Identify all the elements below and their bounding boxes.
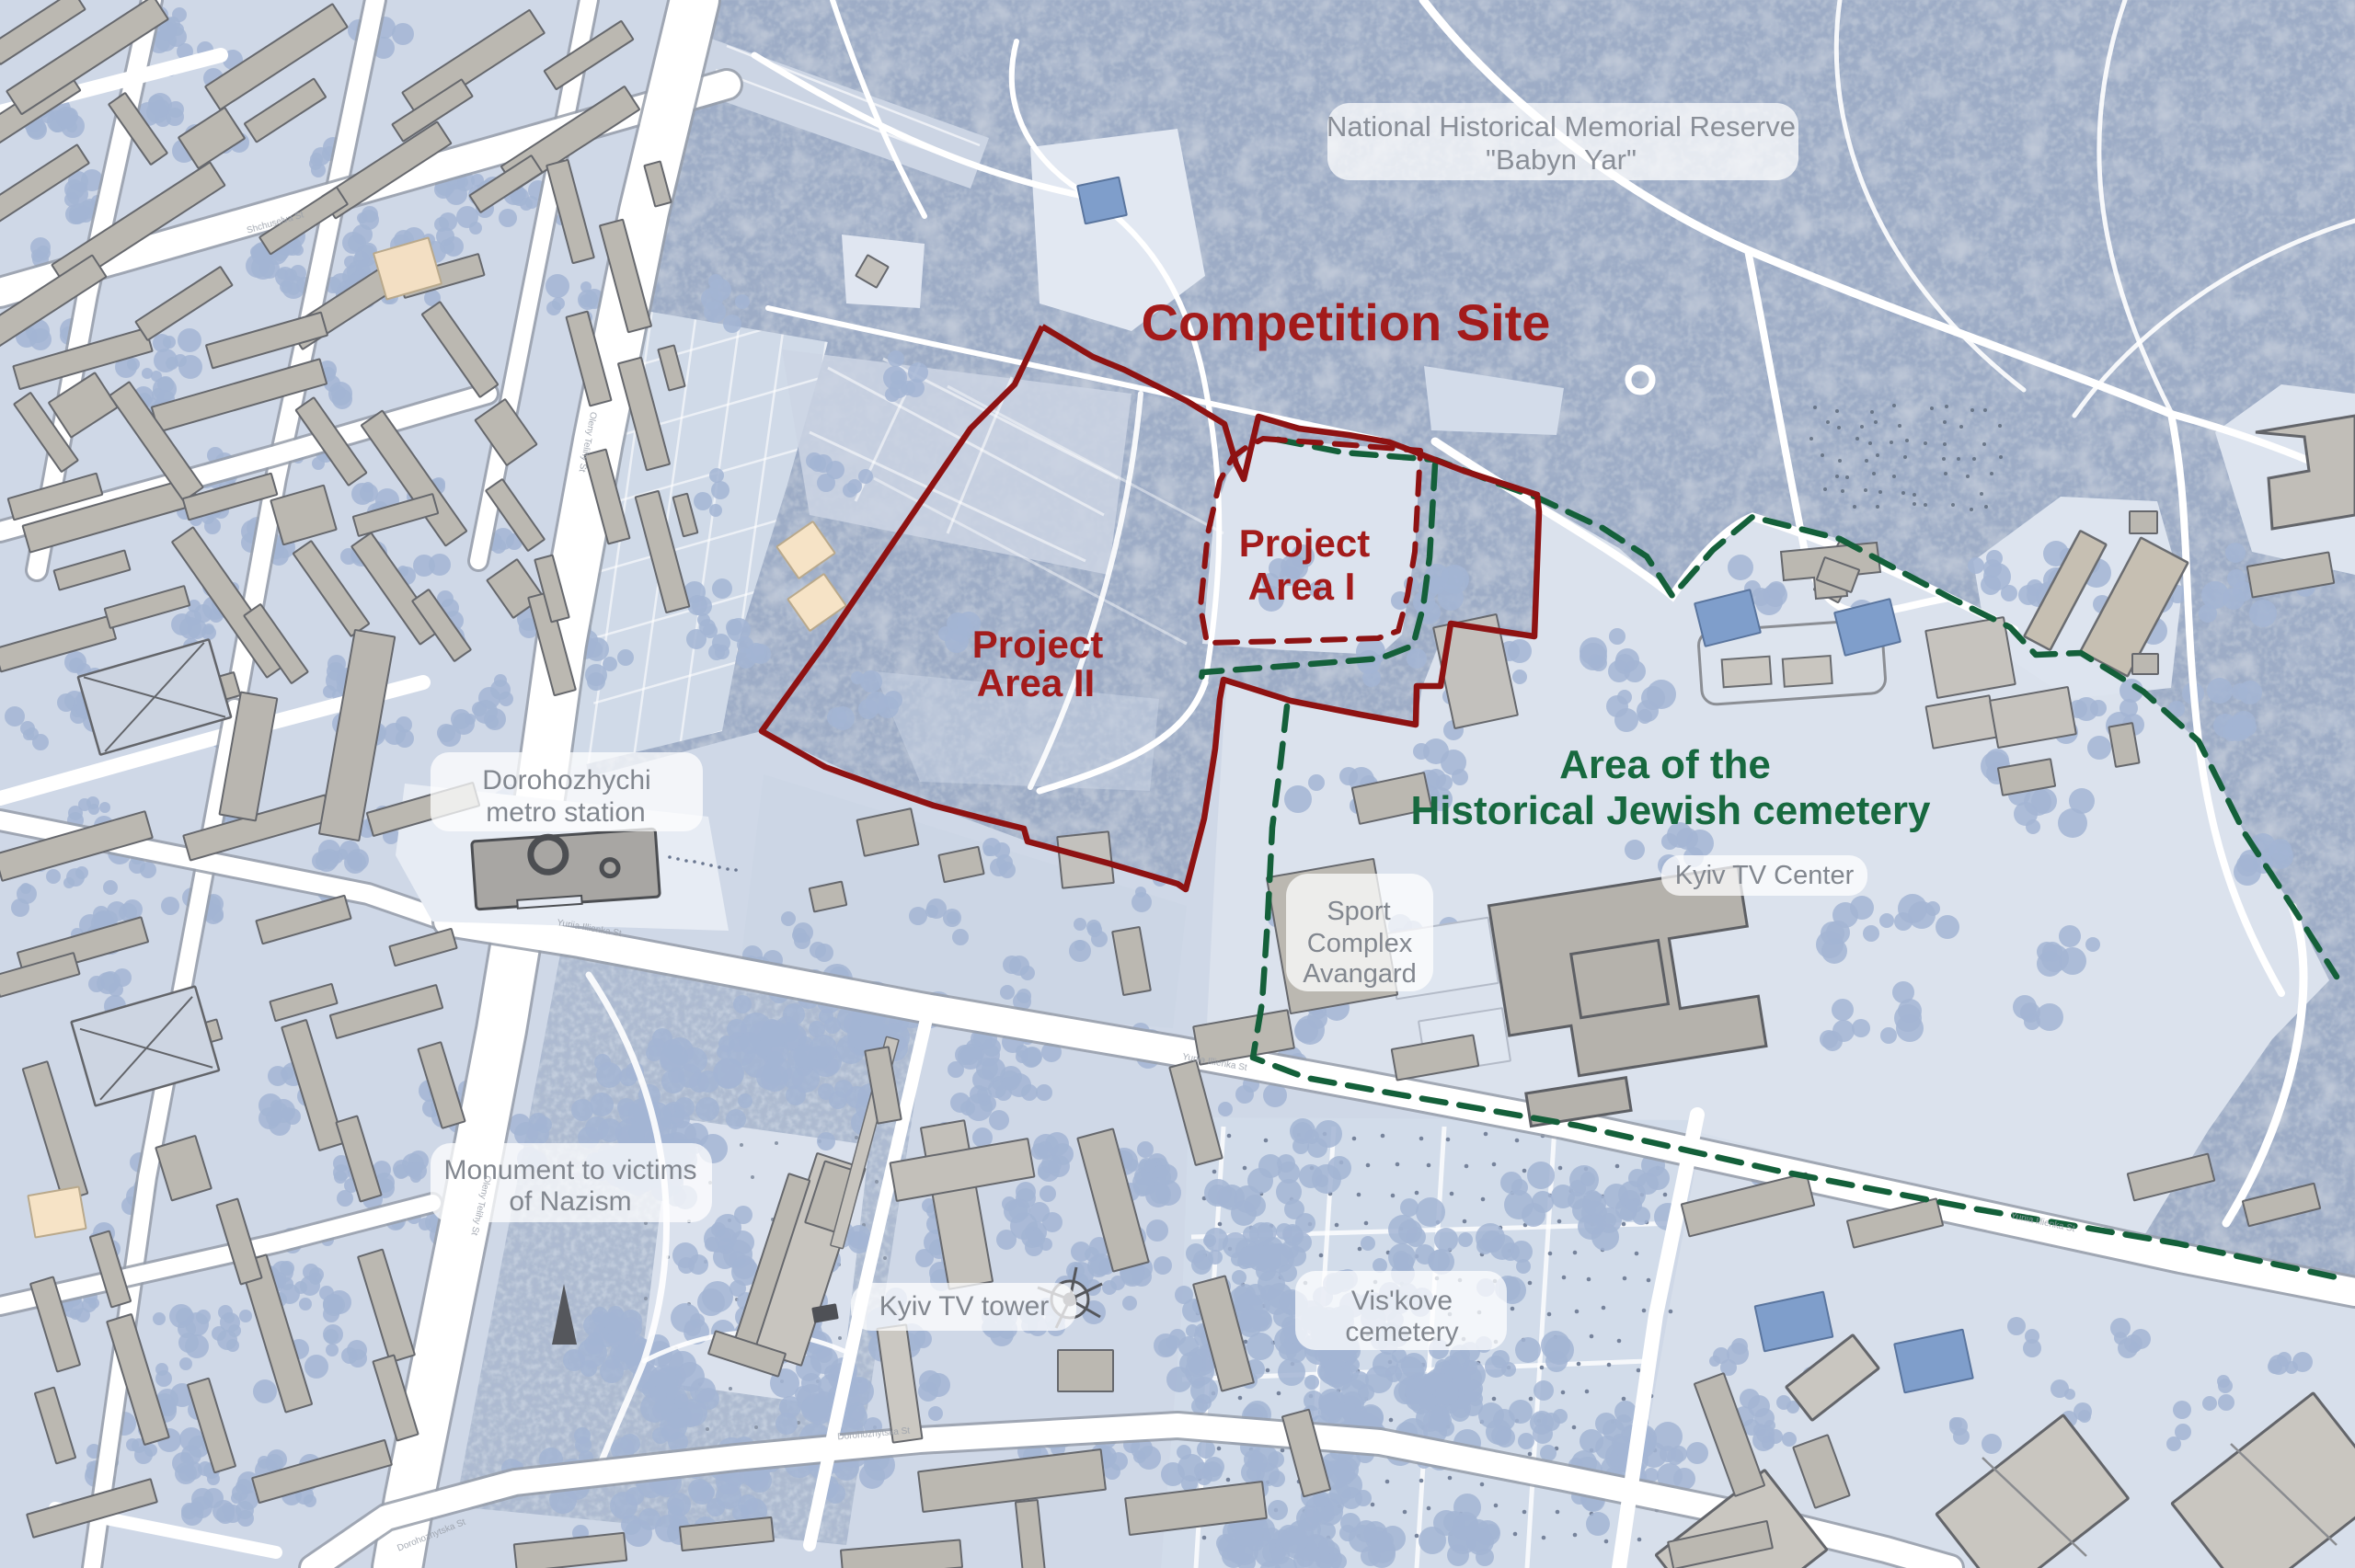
svg-text:Area I: Area I (1248, 565, 1356, 608)
svg-text:Project: Project (1239, 521, 1370, 565)
svg-text:Kyiv TV tower: Kyiv TV tower (879, 1291, 1050, 1322)
svg-text:Sport: Sport (1327, 897, 1390, 926)
svg-text:"Babyn Yar": "Babyn Yar" (1486, 143, 1637, 176)
svg-text:Project: Project (972, 623, 1103, 666)
svg-text:Avangard: Avangard (1303, 959, 1417, 989)
svg-text:Kyiv TV Center: Kyiv TV Center (1675, 861, 1855, 890)
svg-text:cemetery: cemetery (1345, 1317, 1458, 1347)
svg-text:Area II: Area II (977, 661, 1095, 704)
svg-text:Competition Site: Competition Site (1142, 293, 1551, 351)
svg-text:Vis'kove: Vis'kove (1351, 1286, 1453, 1316)
svg-text:Area of the: Area of the (1559, 742, 1771, 787)
svg-text:Historical Jewish cemetery: Historical Jewish cemetery (1411, 788, 1931, 833)
svg-text:Dorohozhychi: Dorohozhychi (482, 765, 650, 795)
svg-text:National Historical Memorial R: National Historical Memorial Reserve (1327, 110, 1796, 143)
svg-text:Complex: Complex (1307, 929, 1413, 958)
svg-text:of Nazism: of Nazism (509, 1186, 631, 1217)
svg-text:metro station: metro station (486, 797, 645, 828)
